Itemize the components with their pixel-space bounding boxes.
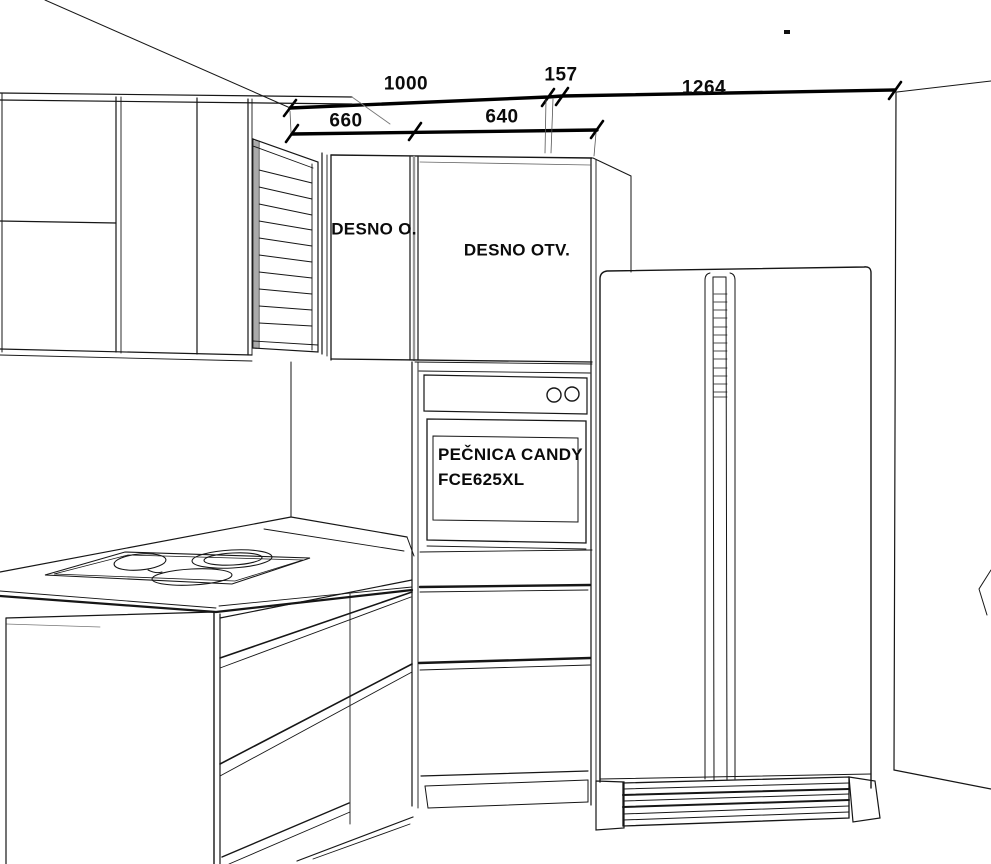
burner-back-right-inner [204, 551, 263, 566]
oven-column-drawers [419, 550, 592, 808]
stray-dot [784, 30, 790, 34]
dimension-label-1000: 1000 [384, 75, 428, 94]
fridge-left-foot [596, 781, 624, 830]
oven-knob-right [565, 387, 579, 401]
dimension-label-157: 157 [544, 66, 577, 85]
oven-control-panel [424, 375, 587, 414]
oven-knob-left [547, 388, 561, 402]
countertop [0, 517, 414, 612]
dimension-label-1264: 1264 [682, 79, 726, 98]
burner-front [152, 567, 233, 587]
oven-brand-line2: FCE625XL [438, 467, 583, 492]
dimension-label-660: 660 [329, 112, 362, 131]
kitchen-drawing: 1000 157 1264 660 640 DESNO O. DESNO OTV… [0, 0, 991, 864]
fridge-vent-grille [623, 777, 849, 826]
oven-brand-label: PEČNICA CANDY FCE625XL [438, 442, 583, 492]
dimension-lines [284, 82, 901, 156]
burner-back-left [113, 552, 166, 572]
louver-panel [253, 139, 327, 356]
fridge-right-foot [849, 777, 880, 822]
handle-stripes [714, 294, 727, 397]
fridge-left-door-edge [705, 273, 710, 779]
base-cabinets [6, 580, 413, 864]
refrigerator [596, 267, 880, 830]
kitchen-line-art [0, 0, 991, 864]
left-door-label: DESNO O. [331, 221, 417, 238]
base-drawer-fronts [220, 580, 413, 864]
oven-brand-line1: PEČNICA CANDY [438, 442, 583, 467]
right-edge-sketch [979, 570, 991, 615]
louver-slats [259, 170, 312, 326]
cooktop [45, 548, 310, 587]
burner-notch [148, 570, 162, 573]
fridge-handles [713, 277, 727, 780]
right-door-label: DESNO OTV. [464, 242, 570, 259]
fridge-right-door-edge [730, 273, 735, 779]
dimension-label-640: 640 [485, 108, 518, 127]
